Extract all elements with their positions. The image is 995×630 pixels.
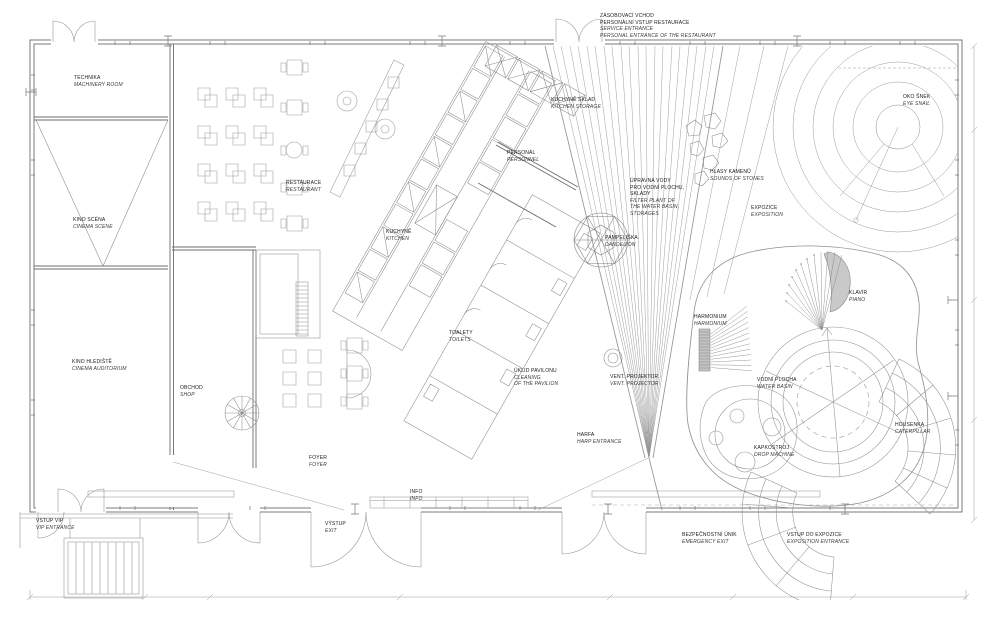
label-piano: KLAVÍRPIANO xyxy=(849,290,867,303)
spiral-staircase xyxy=(225,396,259,430)
label-restaurant-cz: RESTAURACE xyxy=(286,180,321,187)
toilets-rooms xyxy=(404,195,600,460)
label-sounds-of-stones-en: SOUNDS OF STONES xyxy=(710,176,764,183)
label-machinery-room: TECHNIKAMACHINERY ROOM xyxy=(74,75,123,88)
label-vent-projector-cz: VENT. PROJEKTOR xyxy=(610,374,659,381)
label-harmonium-en: HARMONIUM xyxy=(694,321,727,328)
label-info: INFOINFO xyxy=(410,489,423,502)
drop-machine xyxy=(709,399,785,472)
bar-counter xyxy=(256,250,320,338)
restaurant-furniture xyxy=(198,60,404,409)
label-water-basin: VODNÍ PLOCHAWATER BASIN xyxy=(757,377,797,390)
label-info-en: INFO xyxy=(410,496,423,503)
label-water-basin-en: WATER BASIN xyxy=(757,384,797,391)
label-exposition-entrance-cz: VSTUP DO EXPOZICE xyxy=(787,532,849,539)
label-exit-en: EXIT xyxy=(325,528,346,535)
label-drop-machine-en: DROP MACHINE xyxy=(754,452,795,459)
label-toilets-cz: TOALETY xyxy=(449,330,473,337)
label-exit-cz: VÝSTUP xyxy=(325,521,346,528)
label-sounds-of-stones: HLASY KAMENŮSOUNDS OF STONES xyxy=(710,169,764,182)
label-toilets: TOALETYTOILETS xyxy=(449,330,473,343)
label-info-cz: INFO xyxy=(410,489,423,496)
label-caterpillar: HOUSENKACATERPILLAR xyxy=(895,422,930,435)
label-caterpillar-en: CATERPILLAR xyxy=(895,429,930,436)
label-kitchen: KUCHYNĚKITCHEN xyxy=(386,229,412,242)
cinema-projection-lines xyxy=(36,120,168,266)
column-ticks xyxy=(26,36,959,514)
label-shop: OBCHODSHOP xyxy=(180,385,203,398)
label-harp-entrance-en: HARP ENTRANCE xyxy=(577,439,622,446)
label-kitchen-storage: KUCHYNĚ SKLADKITCHEN STORAGE xyxy=(551,97,601,110)
vent-projector-symbol xyxy=(604,349,622,367)
kitchen-equipment xyxy=(333,41,556,350)
label-foyer-cz: FOYER xyxy=(309,455,327,462)
label-service-entrance-cz: ZÁSOBOVACÍ VCHOD PERSONÁLNÍ VSTUP RESTAU… xyxy=(600,13,716,26)
label-drop-machine: KAPKOSTROJDROP MACHINE xyxy=(754,445,795,458)
label-emergency-exit-cz: BEZPEČNOSTNÍ ÚNIK xyxy=(682,532,737,539)
label-vent-projector-en: VENT. PROJECTOR xyxy=(610,381,659,388)
label-piano-cz: KLAVÍR xyxy=(849,290,867,297)
label-vent-projector: VENT. PROJEKTORVENT. PROJECTOR xyxy=(610,374,659,387)
label-restaurant: RESTAURACERESTAURANT xyxy=(286,180,321,193)
label-harmonium: HARMONIUMHARMONIUM xyxy=(694,314,727,327)
label-shop-en: SHOP xyxy=(180,392,203,399)
water-basin xyxy=(687,246,928,506)
label-harp-entrance: HARFAHARP ENTRANCE xyxy=(577,432,622,445)
label-filter-plant-en: FILTER PLANT OF THE WATER BASIN, STORAGE… xyxy=(630,198,684,218)
label-cinema-auditorium: KINO HLEDIŠTĚCINEMA AUDITORIUM xyxy=(72,359,127,372)
piano xyxy=(785,251,850,330)
label-kitchen-cz: KUCHYNĚ xyxy=(386,229,412,236)
label-cleaning-en: CLEANING OF THE PAVILION xyxy=(514,375,558,388)
label-exposition-entrance-en: EXPOSITION ENTRANCE xyxy=(787,539,849,546)
label-dandelion-cz: PAMPELIŠKA xyxy=(605,235,638,242)
label-shop-cz: OBCHOD xyxy=(180,385,203,392)
label-personnel: PERSONÁLPERSONNEL xyxy=(507,150,539,163)
label-emergency-exit-en: EMERGENCY EXIT xyxy=(682,539,737,546)
caterpillar xyxy=(742,359,956,608)
label-vip-entrance-en: VIP ENTRANCE xyxy=(36,525,75,532)
label-filter-plant: ÚPRAVNA VODY PRO VODNÍ PLOCHU, SKLADYFIL… xyxy=(630,178,684,217)
label-eye-snail: OKO ŠNEKEYE SNAIL xyxy=(903,94,930,107)
harp-ramp-fan xyxy=(173,46,788,510)
label-kitchen-en: KITCHEN xyxy=(386,236,412,243)
label-eye-snail-en: EYE SNAIL xyxy=(903,101,930,108)
label-eye-snail-cz: OKO ŠNEK xyxy=(903,94,930,101)
label-harmonium-cz: HARMONIUM xyxy=(694,314,727,321)
label-cleaning: ÚKLID PAVILONUCLEANING OF THE PAVILION xyxy=(514,368,558,388)
label-cleaning-cz: ÚKLID PAVILONU xyxy=(514,368,558,375)
label-exposition-entrance: VSTUP DO EXPOZICEEXPOSITION ENTRANCE xyxy=(787,532,849,545)
label-personnel-en: PERSONNEL xyxy=(507,157,539,164)
label-cinema-scene-en: CINEMA SCENE xyxy=(73,224,113,231)
label-kitchen-storage-cz: KUCHYNĚ SKLAD xyxy=(551,97,601,104)
label-kitchen-storage-en: KITCHEN STORAGE xyxy=(551,104,601,111)
label-cinema-auditorium-en: CINEMA AUDITORIUM xyxy=(72,366,127,373)
label-piano-en: PIANO xyxy=(849,297,867,304)
label-exposition-en: EXPOSITION xyxy=(751,212,783,219)
label-foyer: FOYERFOYER xyxy=(309,455,327,468)
label-drop-machine-cz: KAPKOSTROJ xyxy=(754,445,795,452)
label-cinema-scene: KINO SCÉNACINEMA SCENE xyxy=(73,217,113,230)
floor-plan-page: ZÁSOBOVACÍ VCHOD PERSONÁLNÍ VSTUP RESTAU… xyxy=(0,0,995,630)
label-vip-entrance: VSTUP VIPVIP ENTRANCE xyxy=(36,518,75,531)
label-foyer-en: FOYER xyxy=(309,462,327,469)
label-machinery-room-en: MACHINERY ROOM xyxy=(74,82,123,89)
label-dandelion-en: DANDELION xyxy=(605,242,638,249)
walls xyxy=(30,40,962,512)
label-emergency-exit: BEZPEČNOSTNÍ ÚNIKEMERGENCY EXIT xyxy=(682,532,737,545)
label-personnel-cz: PERSONÁL xyxy=(507,150,539,157)
label-service-entrance: ZÁSOBOVACÍ VCHOD PERSONÁLNÍ VSTUP RESTAU… xyxy=(600,13,716,39)
label-exit: VÝSTUPEXIT xyxy=(325,521,346,534)
label-toilets-en: TOILETS xyxy=(449,337,473,344)
label-service-entrance-en: SERVICE ENTRANCE PERSONAL ENTRANCE OF TH… xyxy=(600,26,716,39)
label-restaurant-en: RESTAURANT xyxy=(286,187,321,194)
label-filter-plant-cz: ÚPRAVNA VODY PRO VODNÍ PLOCHU, SKLADY xyxy=(630,178,684,198)
label-exposition: EXPOZICEEXPOSITION xyxy=(751,205,783,218)
dimension-lines xyxy=(27,43,977,600)
label-dandelion: PAMPELIŠKADANDELION xyxy=(605,235,638,248)
label-water-basin-cz: VODNÍ PLOCHA xyxy=(757,377,797,384)
